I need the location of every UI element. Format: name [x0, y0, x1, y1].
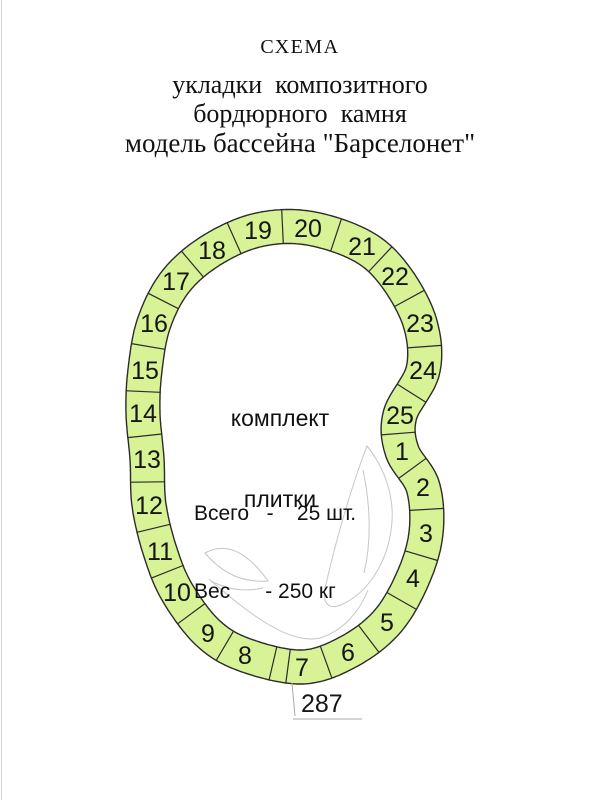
tile-kit-label-line-1: комплект: [231, 405, 329, 432]
dimension-callout: 287: [292, 683, 362, 719]
tile-number: 22: [381, 263, 409, 291]
total-weight-line: Вес - 250 кг: [194, 579, 356, 605]
tile-number: 17: [162, 268, 190, 296]
tile-number: 8: [238, 642, 252, 670]
tile-number: 2: [416, 474, 430, 502]
tile-number: 1: [395, 438, 409, 466]
tile-number: 12: [135, 492, 163, 520]
tile-number: 10: [163, 579, 191, 607]
tile-number: 19: [244, 217, 272, 245]
tile-number: 25: [386, 402, 414, 430]
tile-number: 24: [409, 357, 437, 385]
tile-number: 20: [294, 215, 322, 243]
decor-curve: [363, 470, 369, 573]
totals-label: Всего - 25 шт. Вес - 250 кг: [194, 449, 356, 631]
tile-number: 15: [131, 357, 159, 385]
dimension-label: 287: [301, 690, 343, 718]
tile-number: 11: [147, 538, 173, 566]
tile-number: 4: [406, 565, 420, 593]
tile-number: 6: [341, 639, 355, 667]
tile-number: 16: [140, 310, 168, 338]
tile-number: 18: [198, 237, 226, 265]
dimension-leader-line: [292, 683, 295, 716]
tile-number: 14: [129, 400, 157, 428]
schematic-page: { "header": { "title": "СХЕМА", "subtitl…: [0, 0, 600, 800]
tile-number: 7: [295, 654, 309, 682]
tile-number: 5: [380, 609, 394, 637]
tile-number: 3: [419, 520, 433, 548]
total-count-line: Всего - 25 шт.: [194, 501, 356, 527]
tile-number: 13: [133, 446, 161, 474]
tile-number: 23: [406, 310, 434, 338]
tile-number: 21: [348, 233, 376, 261]
